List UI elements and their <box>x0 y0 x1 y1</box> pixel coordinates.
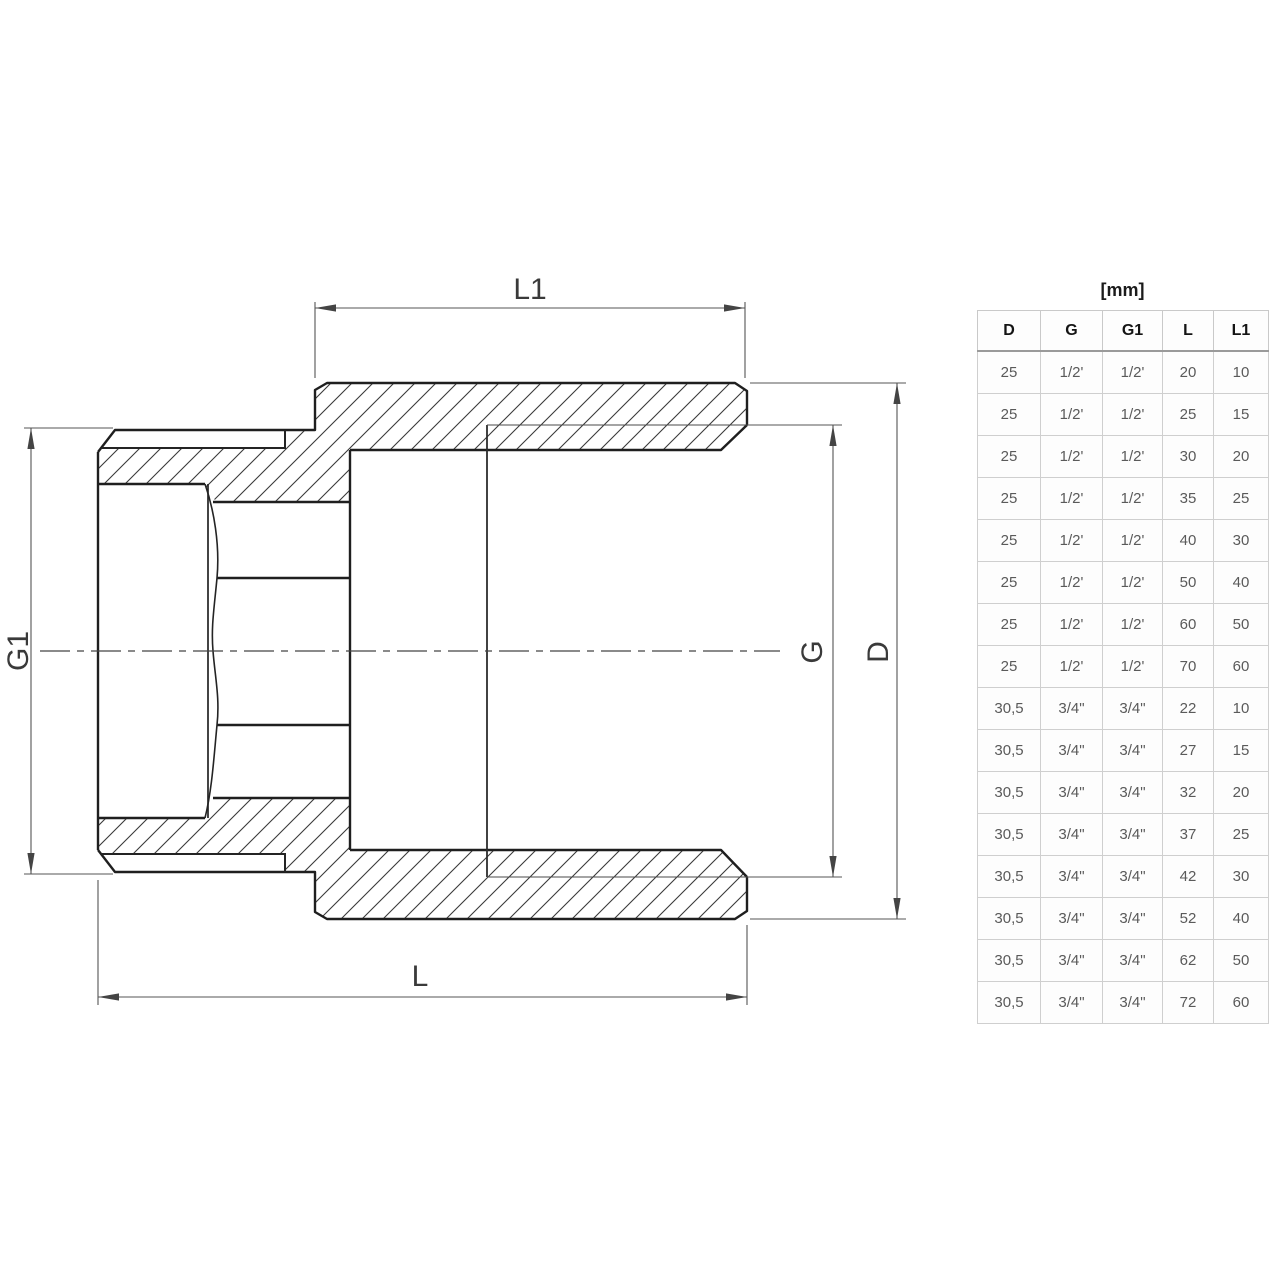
table-row: 251/2'1/2'2515 <box>978 394 1269 436</box>
table-cell: 25 <box>978 646 1041 688</box>
table-cell: 3/4" <box>1103 730 1163 772</box>
table-cell: 10 <box>1214 688 1269 730</box>
size-table-header-row: DGG1LL1 <box>978 311 1269 352</box>
table-cell: 1/2' <box>1041 351 1103 394</box>
table-row: 30,53/4"3/4"3725 <box>978 814 1269 856</box>
table-cell: 3/4" <box>1103 898 1163 940</box>
table-cell: 1/2' <box>1041 394 1103 436</box>
size-table-column-header: L1 <box>1214 311 1269 352</box>
table-row: 251/2'1/2'6050 <box>978 604 1269 646</box>
table-cell: 1/2' <box>1103 562 1163 604</box>
table-row: 251/2'1/2'4030 <box>978 520 1269 562</box>
table-cell: 25 <box>1214 478 1269 520</box>
table-cell: 3/4" <box>1041 772 1103 814</box>
dim-label-g: G <box>796 640 829 663</box>
table-row: 30,53/4"3/4"4230 <box>978 856 1269 898</box>
table-unit-label: [mm] <box>977 278 1268 310</box>
table-cell: 30 <box>1163 436 1214 478</box>
table-cell: 1/2' <box>1041 520 1103 562</box>
table-cell: 1/2' <box>1103 604 1163 646</box>
table-cell: 40 <box>1214 898 1269 940</box>
table-cell: 1/2' <box>1041 604 1103 646</box>
table-cell: 15 <box>1214 730 1269 772</box>
table-cell: 30,5 <box>978 856 1041 898</box>
table-cell: 3/4" <box>1103 688 1163 730</box>
table-cell: 3/4" <box>1041 730 1103 772</box>
table-cell: 32 <box>1163 772 1214 814</box>
size-table-section: [mm] DGG1LL1 251/2'1/2'2010251/2'1/2'251… <box>977 278 1268 1024</box>
table-row: 30,53/4"3/4"2210 <box>978 688 1269 730</box>
table-cell: 1/2' <box>1103 436 1163 478</box>
table-cell: 3/4" <box>1041 856 1103 898</box>
table-cell: 3/4" <box>1041 814 1103 856</box>
table-cell: 50 <box>1214 940 1269 982</box>
table-cell: 15 <box>1214 394 1269 436</box>
table-cell: 1/2' <box>1103 394 1163 436</box>
table-cell: 30,5 <box>978 940 1041 982</box>
table-cell: 30,5 <box>978 898 1041 940</box>
table-row: 251/2'1/2'2010 <box>978 351 1269 394</box>
table-cell: 40 <box>1214 562 1269 604</box>
table-cell: 3/4" <box>1041 898 1103 940</box>
table-cell: 25 <box>978 436 1041 478</box>
size-table-column-header: D <box>978 311 1041 352</box>
table-row: 251/2'1/2'3525 <box>978 478 1269 520</box>
table-cell: 1/2' <box>1041 436 1103 478</box>
table-cell: 1/2' <box>1103 520 1163 562</box>
table-row: 30,53/4"3/4"7260 <box>978 982 1269 1024</box>
table-cell: 30 <box>1214 520 1269 562</box>
table-cell: 10 <box>1214 351 1269 394</box>
table-cell: 3/4" <box>1103 814 1163 856</box>
table-cell: 1/2' <box>1103 646 1163 688</box>
table-cell: 3/4" <box>1041 940 1103 982</box>
table-cell: 30,5 <box>978 982 1041 1024</box>
size-table: DGG1LL1 251/2'1/2'2010251/2'1/2'2515251/… <box>977 310 1269 1024</box>
table-cell: 27 <box>1163 730 1214 772</box>
size-table-column-header: L <box>1163 311 1214 352</box>
l1-extension-lines <box>315 302 745 378</box>
table-cell: 1/2' <box>1041 562 1103 604</box>
size-table-body: 251/2'1/2'2010251/2'1/2'2515251/2'1/2'30… <box>978 351 1269 1024</box>
table-cell: 30,5 <box>978 814 1041 856</box>
table-row: 251/2'1/2'7060 <box>978 646 1269 688</box>
table-cell: 25 <box>1163 394 1214 436</box>
dim-label-d: D <box>862 641 895 663</box>
dim-label-l1: L1 <box>513 273 546 306</box>
table-cell: 30,5 <box>978 772 1041 814</box>
table-cell: 25 <box>978 562 1041 604</box>
size-table-column-header: G1 <box>1103 311 1163 352</box>
size-table-column-header: G <box>1041 311 1103 352</box>
table-cell: 42 <box>1163 856 1214 898</box>
table-row: 251/2'1/2'5040 <box>978 562 1269 604</box>
table-cell: 25 <box>978 351 1041 394</box>
table-cell: 60 <box>1214 646 1269 688</box>
table-cell: 20 <box>1163 351 1214 394</box>
table-cell: 35 <box>1163 478 1214 520</box>
table-cell: 3/4" <box>1041 688 1103 730</box>
table-cell: 3/4" <box>1103 856 1163 898</box>
table-cell: 52 <box>1163 898 1214 940</box>
table-row: 30,53/4"3/4"3220 <box>978 772 1269 814</box>
table-cell: 50 <box>1163 562 1214 604</box>
table-cell: 20 <box>1214 772 1269 814</box>
table-cell: 30,5 <box>978 688 1041 730</box>
table-cell: 40 <box>1163 520 1214 562</box>
table-cell: 37 <box>1163 814 1214 856</box>
dim-label-g1: G1 <box>2 631 35 671</box>
table-cell: 30 <box>1214 856 1269 898</box>
table-row: 30,53/4"3/4"2715 <box>978 730 1269 772</box>
table-cell: 25 <box>978 394 1041 436</box>
table-cell: 60 <box>1214 982 1269 1024</box>
table-cell: 50 <box>1214 604 1269 646</box>
table-cell: 25 <box>978 478 1041 520</box>
table-cell: 3/4" <box>1103 982 1163 1024</box>
table-row: 30,53/4"3/4"6250 <box>978 940 1269 982</box>
table-cell: 25 <box>978 604 1041 646</box>
section-hatch-bottom-wall <box>98 798 747 919</box>
table-cell: 1/2' <box>1041 478 1103 520</box>
table-row: 251/2'1/2'3020 <box>978 436 1269 478</box>
table-cell: 1/2' <box>1103 351 1163 394</box>
table-cell: 30,5 <box>978 730 1041 772</box>
table-cell: 25 <box>978 520 1041 562</box>
table-cell: 70 <box>1163 646 1214 688</box>
table-cell: 60 <box>1163 604 1214 646</box>
dim-label-l: L <box>412 960 429 993</box>
page: L1 L G1 G D [mm] DGG1LL1 251/2'1/2'20102… <box>0 0 1280 1280</box>
table-cell: 3/4" <box>1103 772 1163 814</box>
table-cell: 3/4" <box>1041 982 1103 1024</box>
table-cell: 3/4" <box>1103 940 1163 982</box>
table-cell: 25 <box>1214 814 1269 856</box>
thread-root-top <box>102 430 285 448</box>
table-cell: 1/2' <box>1103 478 1163 520</box>
table-cell: 1/2' <box>1041 646 1103 688</box>
table-cell: 72 <box>1163 982 1214 1024</box>
table-row: 30,53/4"3/4"5240 <box>978 898 1269 940</box>
table-cell: 20 <box>1214 436 1269 478</box>
thread-root-bottom <box>102 854 285 872</box>
table-cell: 62 <box>1163 940 1214 982</box>
table-cell: 22 <box>1163 688 1214 730</box>
